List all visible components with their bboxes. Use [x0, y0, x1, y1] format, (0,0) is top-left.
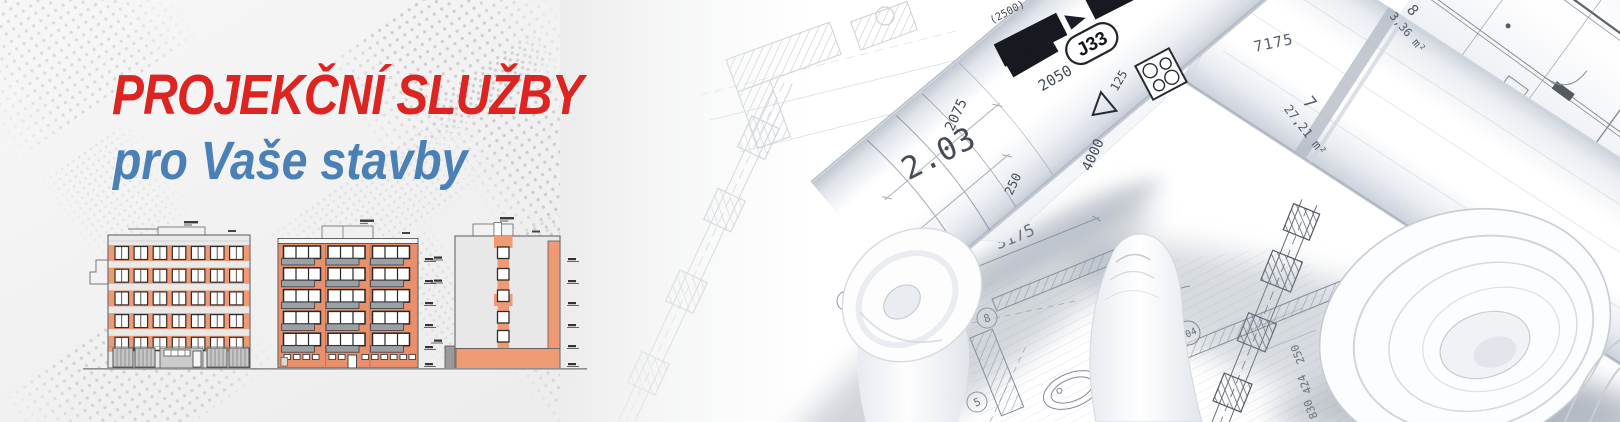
dimension-ticks-right — [567, 258, 579, 367]
building-elevations — [80, 208, 590, 386]
hero-banner: 3175 9 8 5 — [0, 0, 1620, 422]
banner-subheadline: pro Vaše stavby — [113, 130, 467, 192]
garage-level — [113, 348, 249, 368]
building-elevation-side — [431, 217, 579, 369]
banner-headline: PROJEKČNÍ SLUŽBY — [112, 64, 583, 128]
entrance-door — [348, 355, 357, 368]
balcony-windows — [282, 246, 410, 352]
dimension-ticks-right — [424, 258, 436, 367]
rolled-blueprints-photo: 3175 9 8 5 — [560, 0, 1620, 422]
dimension-lines-left — [90, 260, 108, 284]
building-elevation-balconies — [278, 220, 436, 369]
building-elevation-front — [90, 221, 250, 368]
dimension-ticks-left — [431, 257, 443, 344]
